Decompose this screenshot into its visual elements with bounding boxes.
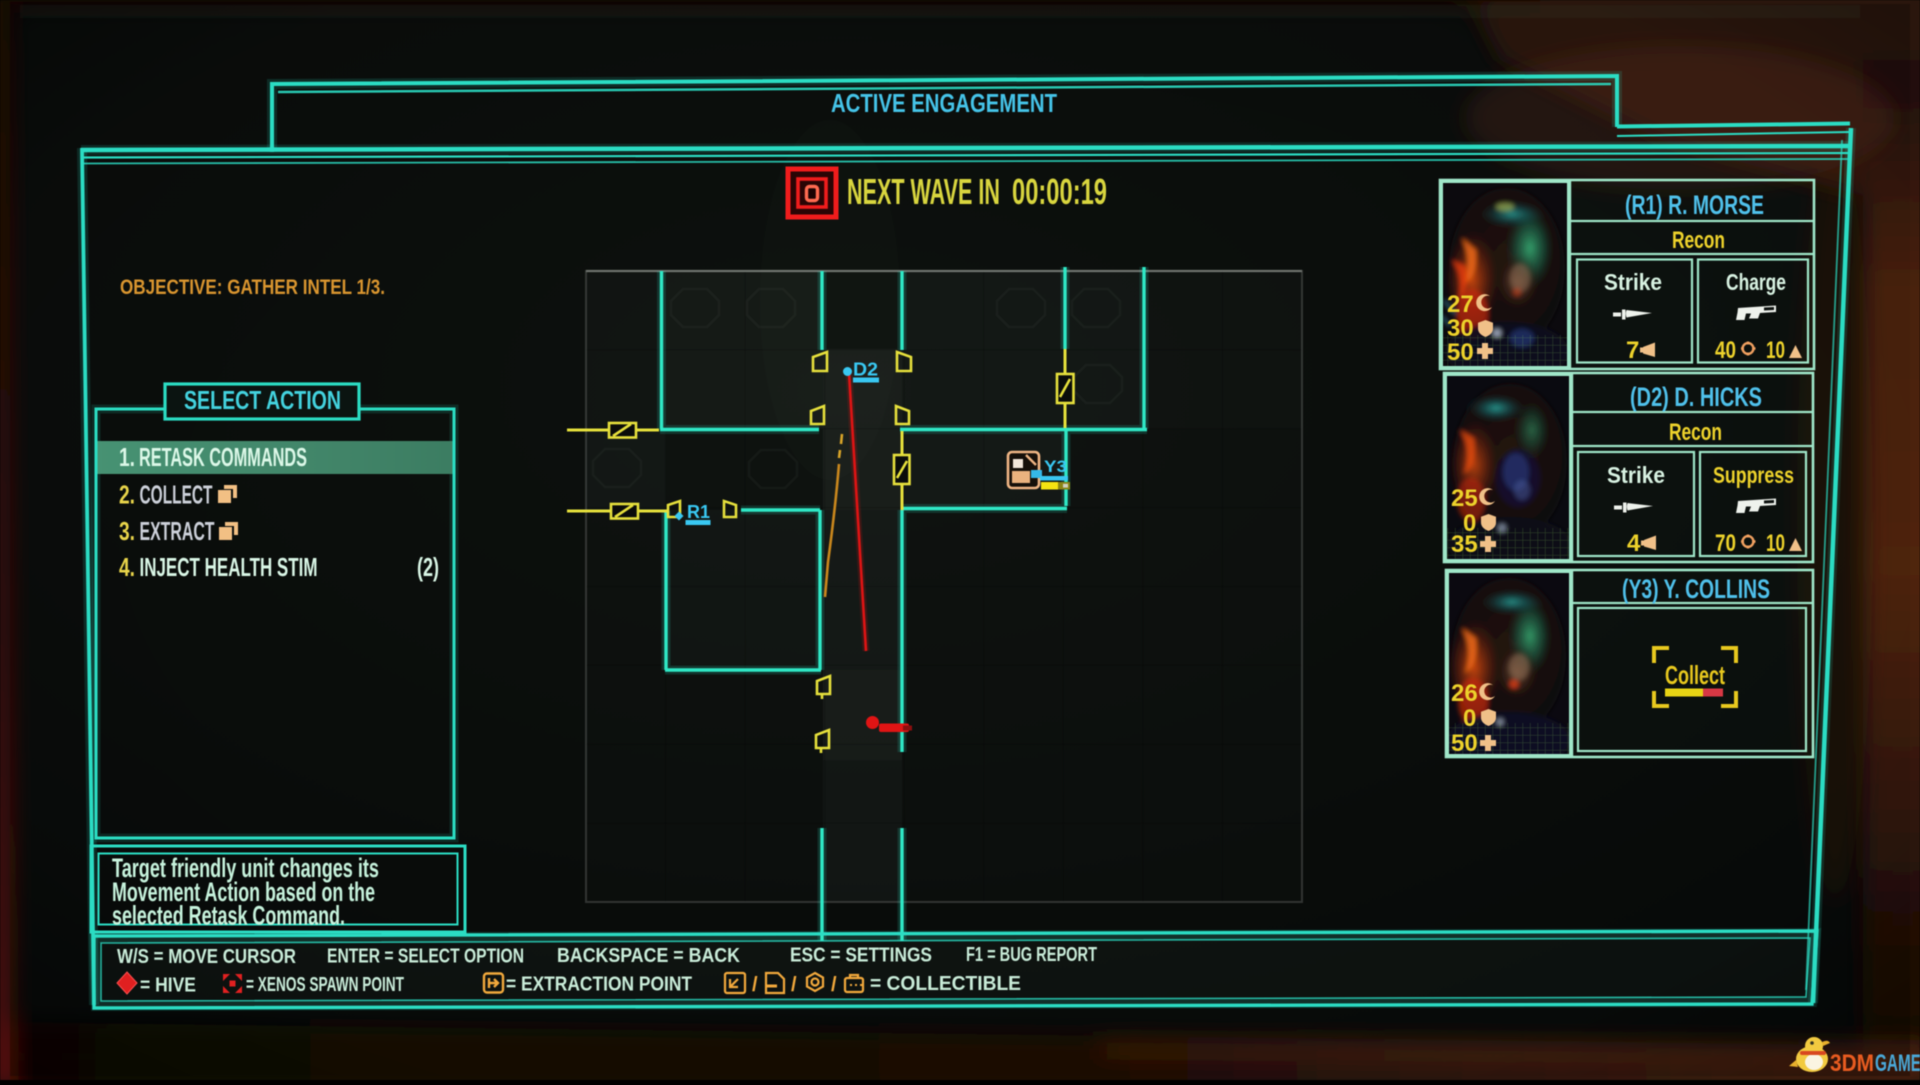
svg-text:10: 10 xyxy=(1766,337,1785,364)
svg-text:3.: 3. xyxy=(119,516,135,546)
svg-text:BACKSPACE = BACK: BACKSPACE = BACK xyxy=(557,945,740,967)
svg-text:7: 7 xyxy=(1626,337,1639,364)
svg-text:Recon: Recon xyxy=(1669,419,1722,446)
svg-text:= HIVE: = HIVE xyxy=(140,975,196,997)
svg-text:(2): (2) xyxy=(417,552,439,582)
svg-text:GAME: GAME xyxy=(1875,1050,1920,1077)
svg-text:40: 40 xyxy=(1715,337,1736,364)
svg-text:4: 4 xyxy=(1627,530,1641,557)
svg-text:Recon: Recon xyxy=(1672,227,1725,254)
svg-text:2.: 2. xyxy=(119,480,135,510)
svg-text:INJECT HEALTH STIM: INJECT HEALTH STIM xyxy=(140,552,318,582)
svg-text:25: 25 xyxy=(1451,485,1478,512)
svg-text:= XENOS SPAWN POINT: = XENOS SPAWN POINT xyxy=(246,974,404,996)
svg-text:26: 26 xyxy=(1451,680,1478,707)
svg-text:27: 27 xyxy=(1447,291,1474,318)
svg-text:/: / xyxy=(752,974,758,996)
svg-text:50: 50 xyxy=(1451,730,1478,757)
svg-text:(R1) R. MORSE: (R1) R. MORSE xyxy=(1625,190,1764,220)
svg-text:EXTRACT: EXTRACT xyxy=(140,516,215,546)
svg-text:Suppress: Suppress xyxy=(1713,462,1794,488)
svg-text:/: / xyxy=(791,974,797,996)
svg-text:F1 = BUG REPORT: F1 = BUG REPORT xyxy=(966,944,1097,966)
svg-text:1.: 1. xyxy=(119,442,135,472)
svg-text:Y3: Y3 xyxy=(1044,457,1067,476)
svg-text:(D2) D. HICKS: (D2) D. HICKS xyxy=(1630,382,1762,412)
svg-text:Charge: Charge xyxy=(1726,269,1786,295)
svg-text:Strike: Strike xyxy=(1604,269,1662,295)
svg-text:SELECT ACTION: SELECT ACTION xyxy=(184,385,341,415)
svg-text:00:00:19: 00:00:19 xyxy=(1012,171,1107,212)
svg-text:Strike: Strike xyxy=(1607,462,1665,488)
svg-text:/: / xyxy=(831,974,837,996)
svg-text:ACTIVE ENGAGEMENT: ACTIVE ENGAGEMENT xyxy=(831,88,1057,118)
svg-text:50: 50 xyxy=(1447,339,1474,366)
svg-text:ENTER = SELECT OPTION: ENTER = SELECT OPTION xyxy=(327,946,524,968)
svg-text:3DM: 3DM xyxy=(1830,1050,1874,1077)
svg-text:OBJECTIVE: GATHER INTEL 1/3.: OBJECTIVE: GATHER INTEL 1/3. xyxy=(120,276,385,299)
svg-text:selected Retask Command.: selected Retask Command. xyxy=(112,901,345,931)
svg-text:NEXT WAVE IN: NEXT WAVE IN xyxy=(847,171,1000,212)
svg-text:0: 0 xyxy=(1463,705,1476,732)
svg-text:= EXTRACTION POINT: = EXTRACTION POINT xyxy=(506,974,692,996)
svg-text:= COLLECTIBLE: = COLLECTIBLE xyxy=(870,973,1021,995)
svg-text:COLLECT: COLLECT xyxy=(140,480,213,510)
svg-text:35: 35 xyxy=(1451,531,1478,558)
svg-text:Collect: Collect xyxy=(1665,660,1725,690)
svg-text:4.: 4. xyxy=(119,552,135,582)
svg-text:30: 30 xyxy=(1447,315,1474,342)
svg-text:D2: D2 xyxy=(853,360,878,380)
svg-text:(Y3) Y. COLLINS: (Y3) Y. COLLINS xyxy=(1622,574,1770,604)
svg-text:W/S = MOVE CURSOR: W/S = MOVE CURSOR xyxy=(117,946,296,968)
svg-text:70: 70 xyxy=(1715,530,1736,557)
svg-text:R1: R1 xyxy=(687,502,710,522)
svg-text:ESC = SETTINGS: ESC = SETTINGS xyxy=(790,945,932,967)
svg-text:10: 10 xyxy=(1766,530,1785,557)
svg-text:RETASK COMMANDS: RETASK COMMANDS xyxy=(139,442,307,472)
